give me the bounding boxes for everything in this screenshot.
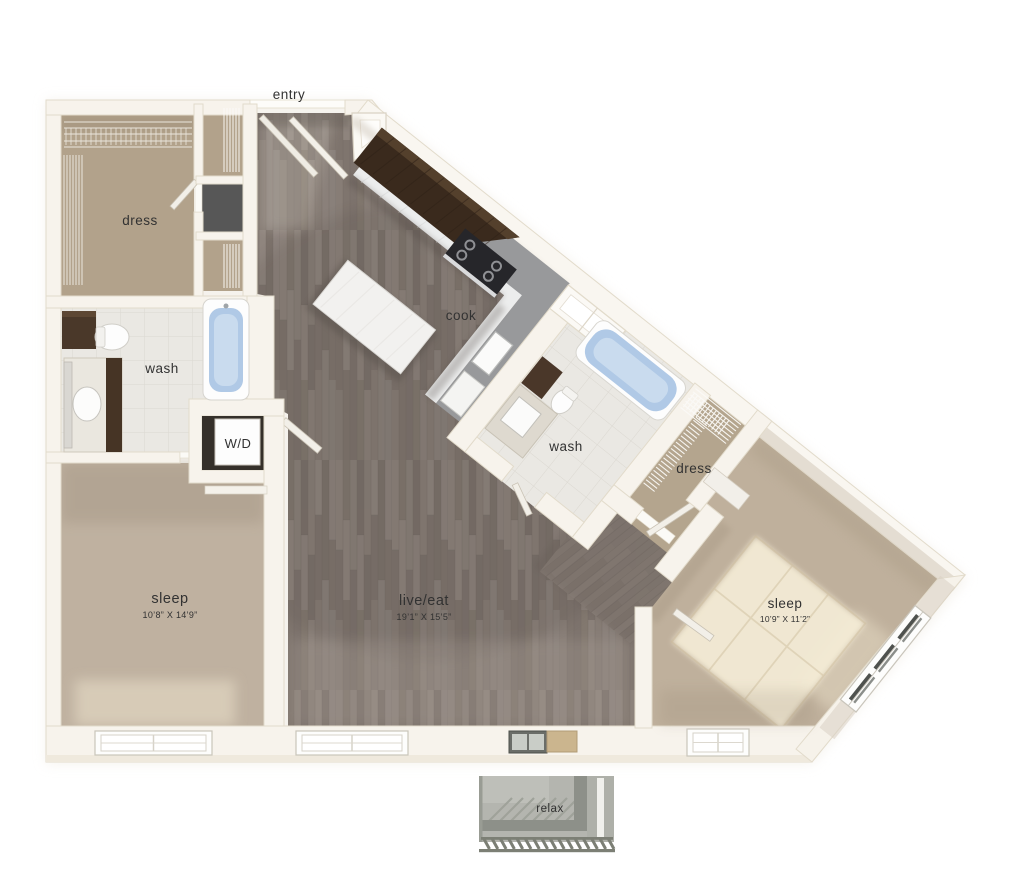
svg-text:live/eat: live/eat [399, 593, 449, 609]
svg-text:sleep: sleep [768, 596, 803, 611]
svg-text:wash: wash [144, 361, 179, 376]
svg-text:dress: dress [122, 213, 158, 228]
svg-text:10’8” X 14’9”: 10’8” X 14’9” [143, 610, 198, 620]
svg-text:sleep: sleep [151, 591, 188, 607]
svg-text:19’1” X 15’5”: 19’1” X 15’5” [397, 612, 452, 622]
svg-text:W/D: W/D [225, 436, 252, 451]
svg-text:entry: entry [273, 87, 306, 102]
svg-text:dress: dress [676, 461, 712, 476]
svg-text:relax: relax [536, 803, 563, 815]
svg-text:cook: cook [446, 308, 477, 323]
svg-text:10’9” X 11’2”: 10’9” X 11’2” [760, 614, 810, 624]
svg-text:wash: wash [548, 439, 583, 454]
